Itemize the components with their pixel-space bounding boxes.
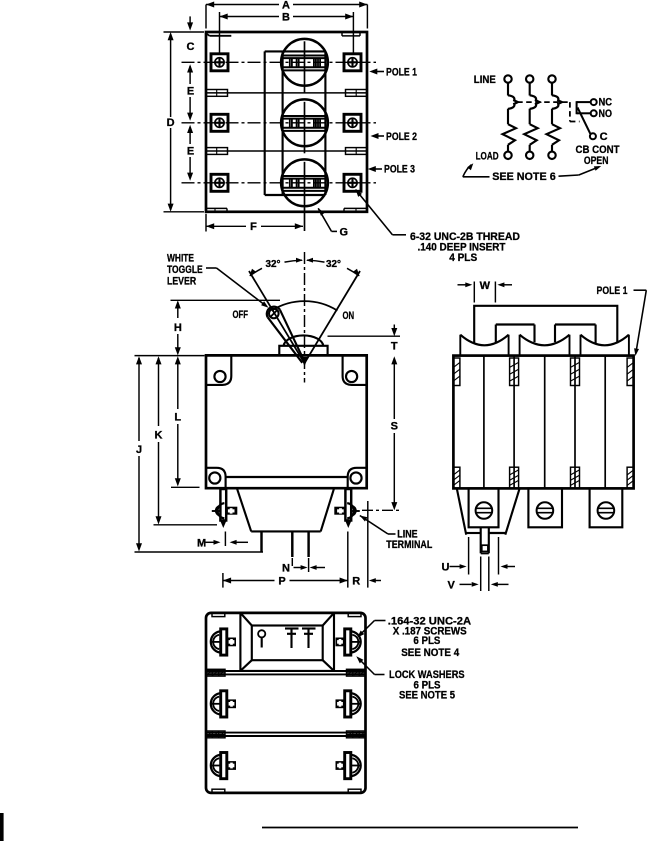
- svg-text:POLE 3: POLE 3: [384, 164, 415, 176]
- svg-text:B: B: [282, 11, 290, 23]
- svg-text:32°: 32°: [266, 259, 281, 270]
- svg-text:4 PLS: 4 PLS: [449, 252, 477, 264]
- svg-text:OFF: OFF: [233, 309, 249, 321]
- svg-text:E: E: [187, 145, 194, 157]
- svg-text:6 PLS: 6 PLS: [413, 635, 440, 647]
- svg-text:ON: ON: [343, 310, 355, 322]
- svg-text:CB CONT: CB CONT: [576, 144, 620, 156]
- svg-text:TERMINAL: TERMINAL: [386, 539, 432, 551]
- svg-text:L: L: [174, 412, 181, 424]
- svg-text:V: V: [448, 580, 456, 592]
- svg-text:NC: NC: [599, 97, 613, 109]
- svg-text:J: J: [136, 444, 142, 456]
- svg-text:H: H: [174, 322, 182, 334]
- svg-text:LINE: LINE: [474, 74, 496, 86]
- svg-text:WHITE: WHITE: [167, 253, 194, 265]
- svg-text:M: M: [197, 537, 206, 549]
- svg-text:POLE 2: POLE 2: [386, 131, 417, 143]
- svg-text:S: S: [391, 421, 398, 433]
- svg-text:SEE NOTE 5: SEE NOTE 5: [399, 690, 455, 702]
- svg-text:D: D: [167, 117, 175, 129]
- svg-text:G: G: [340, 227, 349, 239]
- svg-text:POLE 1: POLE 1: [597, 285, 628, 297]
- svg-text:E: E: [187, 85, 194, 97]
- svg-text:K: K: [155, 429, 163, 441]
- svg-text:U: U: [442, 562, 450, 574]
- svg-text:TOGGLE: TOGGLE: [167, 264, 203, 276]
- svg-text:C: C: [187, 41, 195, 53]
- svg-text:LOAD: LOAD: [476, 151, 499, 163]
- svg-text:T: T: [391, 341, 398, 353]
- svg-text:LEVER: LEVER: [167, 276, 196, 288]
- svg-text:OPEN: OPEN: [584, 155, 609, 167]
- svg-text:A: A: [282, 0, 290, 11]
- svg-text:F: F: [250, 221, 257, 233]
- svg-text:POLE 1: POLE 1: [386, 67, 417, 79]
- svg-text:W: W: [480, 280, 491, 292]
- svg-text:R: R: [352, 575, 360, 587]
- svg-text:P: P: [278, 575, 285, 587]
- svg-text:NO: NO: [599, 108, 613, 120]
- svg-text:C: C: [600, 131, 608, 143]
- svg-text:32°: 32°: [326, 259, 341, 270]
- svg-text:SEE NOTE 6: SEE NOTE 6: [492, 171, 556, 183]
- svg-text:SEE NOTE 4: SEE NOTE 4: [401, 647, 460, 659]
- svg-text:N: N: [282, 563, 290, 575]
